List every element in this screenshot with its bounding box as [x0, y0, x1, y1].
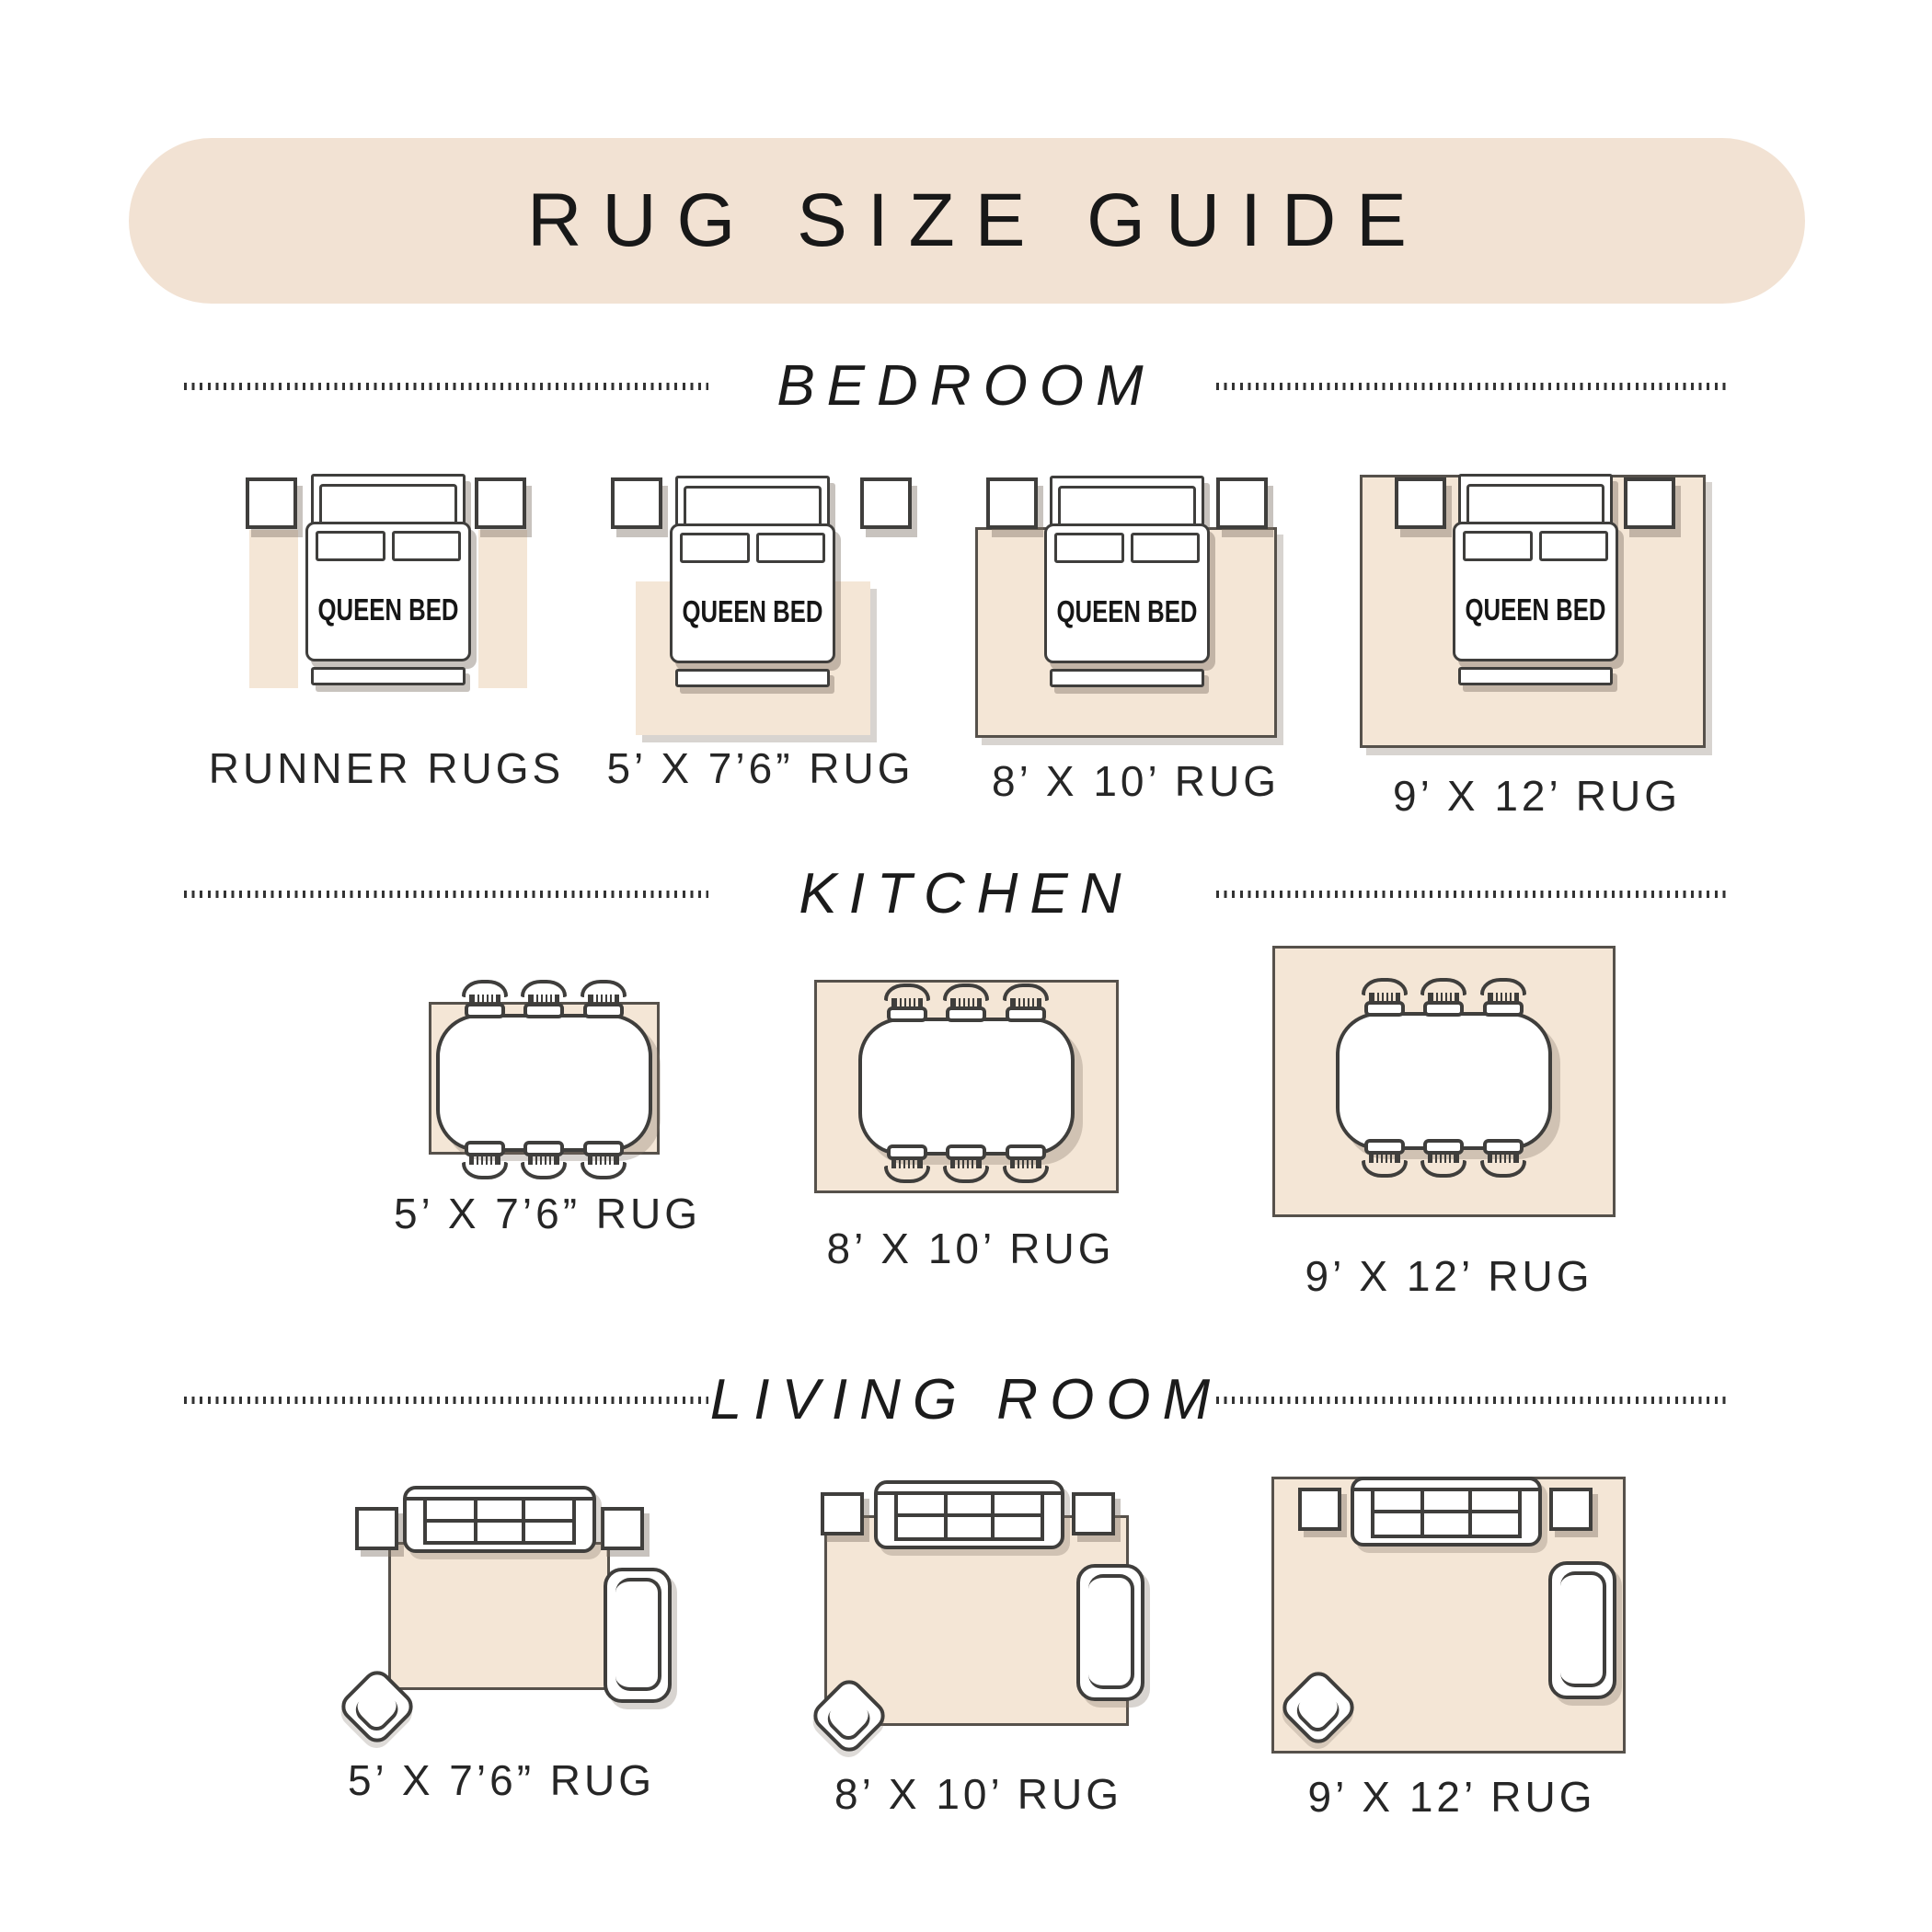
chair-seat: [1483, 1001, 1524, 1017]
dining-chair: [1003, 983, 1049, 1022]
dining-chair: [581, 1141, 627, 1179]
sofa: [1351, 1477, 1542, 1547]
dining-chair: [581, 980, 627, 1018]
diagram-label: 5’ X 7’6” RUG: [377, 1189, 718, 1238]
dotted-divider-right: [1216, 1397, 1728, 1404]
mattress: QUEEN BED: [305, 522, 471, 661]
dotted-divider-right: [1216, 891, 1728, 898]
nightstand-left: [611, 477, 662, 529]
pillow: [1054, 533, 1124, 563]
mattress: QUEEN BED: [1044, 523, 1210, 663]
side-table-right: [601, 1507, 644, 1550]
dining-chair: [943, 983, 989, 1022]
chair-seat: [1364, 1001, 1405, 1017]
diagram-label: 9’ X 12’ RUG: [1344, 771, 1730, 821]
pillow: [1539, 531, 1609, 561]
chair-seat: [946, 1006, 986, 1022]
nightstand-left: [986, 477, 1038, 529]
bed-label: QUEEN BED: [326, 561, 451, 659]
rug-size-guide-infographic: RUG SIZE GUIDE BEDROOM QUEEN BED RUNNER …: [0, 0, 1932, 1932]
chair-cushion: [1369, 1154, 1400, 1163]
dining-chair: [884, 983, 930, 1022]
nightstand-left: [1395, 477, 1446, 529]
chair-cushion: [1010, 1159, 1041, 1168]
sofa-cushions: [894, 1491, 1044, 1541]
dining-chair: [943, 1144, 989, 1183]
chair-seat: [946, 1144, 986, 1160]
headboard: [311, 474, 466, 525]
dining-table: [436, 1014, 652, 1152]
chair-cushion: [950, 1159, 982, 1168]
armchair: [1076, 1564, 1144, 1701]
chair-seat: [887, 1006, 927, 1022]
sofa-back-cushion-line: [427, 1519, 572, 1523]
runner-rug-left: [249, 530, 298, 688]
armchair: [604, 1568, 672, 1703]
diagram-label: 5’ X 7’6” RUG: [582, 743, 938, 793]
sofa-cushion-divider: [944, 1495, 948, 1537]
rug-5x76: [388, 1542, 610, 1690]
page-title: RUG SIZE GUIDE: [507, 178, 1427, 264]
sofa-cushions: [423, 1497, 576, 1545]
kitchen-diagram-9x12: 9’ X 12’ RUG: [1260, 938, 1647, 1316]
chair-cushion: [469, 1156, 500, 1165]
sofa-cushion-divider: [1420, 1491, 1424, 1535]
footboard: [311, 667, 466, 685]
dining-table: [1336, 1012, 1552, 1150]
dining-chair: [521, 980, 567, 1018]
bed-label: QUEEN BED: [690, 563, 815, 661]
pillow: [1463, 531, 1533, 561]
dining-chair: [1362, 1139, 1408, 1178]
diagram-label: 5’ X 7’6” RUG: [304, 1755, 699, 1805]
pillow: [680, 533, 750, 563]
nightstand-right: [860, 477, 912, 529]
living-room-diagram-5x76: 5’ X 7’6” RUG: [304, 1463, 699, 1799]
diagram-label: 8’ X 10’ RUG: [947, 756, 1325, 806]
living-room-diagram-8x10: 8’ X 10’ RUG: [782, 1463, 1178, 1831]
pillow: [392, 531, 462, 561]
side-table-left: [1298, 1488, 1341, 1531]
pillow-row: [1455, 524, 1616, 561]
queen-bed: QUEEN BED: [670, 476, 835, 687]
pillow-row: [1047, 526, 1207, 563]
footboard: [675, 669, 830, 687]
chair-seat: [1006, 1144, 1046, 1160]
sofa: [874, 1480, 1064, 1549]
dining-chair: [1480, 978, 1526, 1017]
bedroom-diagram-9x12: QUEEN BED 9’ X 12’ RUG: [1352, 460, 1730, 823]
title-banner: RUG SIZE GUIDE: [129, 138, 1805, 304]
chair-seat: [1483, 1139, 1524, 1155]
side-table-right: [1549, 1488, 1593, 1531]
chair-seat: [1364, 1139, 1405, 1155]
pillow-row: [673, 526, 833, 563]
nightstand-right: [475, 477, 526, 529]
sofa-back-cushion-line: [898, 1513, 1041, 1517]
armchair: [1548, 1561, 1616, 1699]
dining-chair: [884, 1144, 930, 1183]
nightstand-right: [1216, 477, 1268, 529]
chair-seat: [465, 1003, 505, 1018]
chair-seat: [1423, 1139, 1464, 1155]
dining-chair: [462, 1141, 508, 1179]
kitchen-diagram-8x10: 8’ X 10’ RUG: [791, 957, 1159, 1288]
sofa-back-cushion-line: [1374, 1510, 1518, 1513]
chair-seat: [887, 1144, 927, 1160]
chair-seat: [465, 1141, 505, 1156]
section-header-living-room: LIVING ROOM: [0, 1362, 1932, 1439]
bed-label: QUEEN BED: [1064, 563, 1190, 661]
dining-chair: [1420, 978, 1466, 1017]
sofa-cushion-divider: [991, 1495, 995, 1537]
dining-chair: [1362, 978, 1408, 1017]
sofa: [403, 1486, 596, 1553]
chair-seat: [1423, 1001, 1464, 1017]
pillow: [756, 533, 826, 563]
chair-seat: [523, 1141, 564, 1156]
pillow: [316, 531, 385, 561]
section-header-kitchen: KITCHEN: [0, 856, 1932, 933]
footboard: [1050, 669, 1204, 687]
pillow-row: [308, 524, 468, 561]
bedroom-diagram-5x76: QUEEN BED 5’ X 7’6” RUG: [598, 460, 938, 800]
chair-cushion: [528, 1156, 559, 1165]
bedroom-diagram-8x10: QUEEN BED 8’ X 10’ RUG: [966, 460, 1325, 810]
dining-chair: [1420, 1139, 1466, 1178]
diagram-label: 8’ X 10’ RUG: [782, 1224, 1159, 1273]
dining-chair: [1003, 1144, 1049, 1183]
section-header-bedroom: BEDROOM: [0, 348, 1932, 425]
bedroom-diagram-runner-rugs: QUEEN BED RUNNER RUGS: [202, 460, 570, 800]
mattress: QUEEN BED: [1453, 522, 1618, 661]
dining-chair: [1480, 1139, 1526, 1178]
chair-seat: [1006, 1006, 1046, 1022]
queen-bed: QUEEN BED: [1453, 474, 1618, 685]
sofa-cushion-divider: [1468, 1491, 1472, 1535]
side-table-left: [821, 1492, 864, 1535]
diagram-label: RUNNER RUGS: [202, 743, 570, 793]
pillow: [1131, 533, 1201, 563]
dining-chair: [462, 980, 508, 1018]
mattress: QUEEN BED: [670, 523, 835, 663]
headboard: [675, 476, 830, 527]
sofa-cushions: [1371, 1488, 1522, 1538]
nightstand-right: [1624, 477, 1675, 529]
chair-seat: [583, 1141, 624, 1156]
side-table-right: [1072, 1492, 1115, 1535]
chair-seat: [523, 1003, 564, 1018]
footboard: [1458, 667, 1613, 685]
chair-seat: [583, 1003, 624, 1018]
diagram-label: 9’ X 12’ RUG: [1248, 1772, 1656, 1822]
sofa-cushion-divider: [522, 1501, 525, 1541]
dining-table: [858, 1018, 1075, 1156]
dotted-divider-right: [1216, 383, 1728, 390]
kitchen-diagram-5x76: 5’ X 7’6” RUG: [386, 957, 718, 1251]
chair-cushion: [1428, 1154, 1459, 1163]
sofa-cushion-divider: [474, 1501, 477, 1541]
diagram-label: 8’ X 10’ RUG: [779, 1769, 1178, 1819]
headboard: [1458, 474, 1613, 525]
bed-label: QUEEN BED: [1473, 561, 1598, 659]
chair-cushion: [1488, 1154, 1519, 1163]
dining-chair: [521, 1141, 567, 1179]
side-table-left: [355, 1507, 398, 1550]
chair-cushion: [588, 1156, 619, 1165]
diagram-label: 9’ X 12’ RUG: [1251, 1251, 1647, 1301]
nightstand-left: [246, 477, 297, 529]
runner-rug-right: [478, 530, 527, 688]
headboard: [1050, 476, 1204, 527]
queen-bed: QUEEN BED: [305, 474, 471, 685]
chair-cushion: [891, 1159, 923, 1168]
living-room-diagram-9x12: 9’ X 12’ RUG: [1251, 1463, 1656, 1831]
queen-bed: QUEEN BED: [1044, 476, 1210, 687]
